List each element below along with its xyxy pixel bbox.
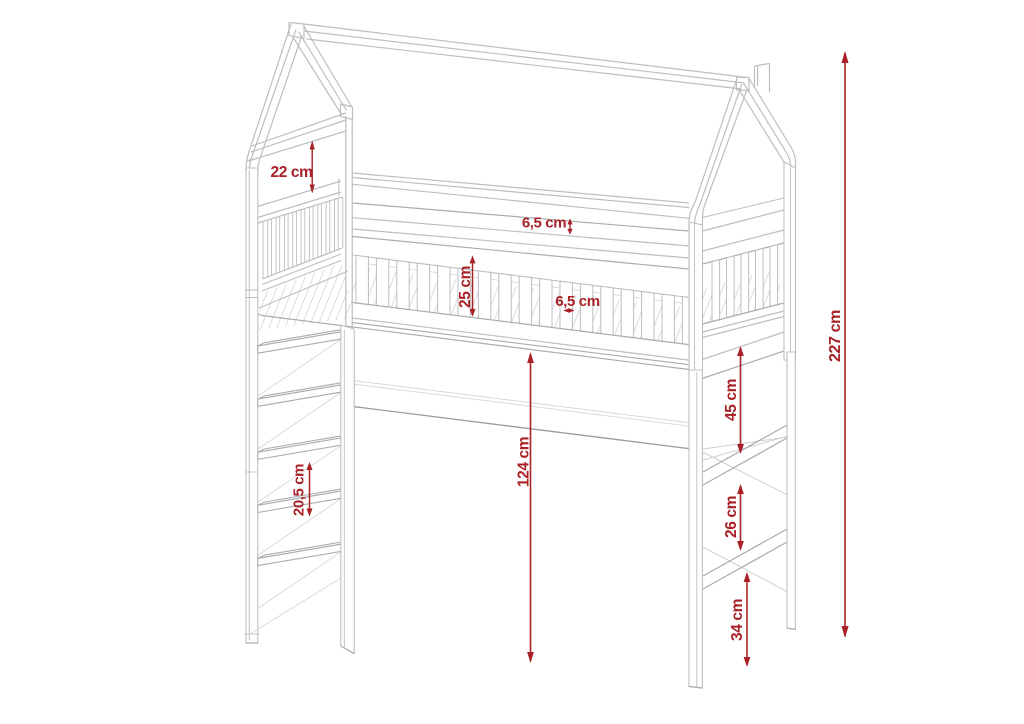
svg-text:26 cm: 26 cm [723, 496, 740, 538]
svg-text:20,5 cm: 20,5 cm [291, 464, 308, 516]
svg-text:227 cm: 227 cm [827, 310, 844, 362]
svg-text:34 cm: 34 cm [729, 599, 746, 641]
svg-text:25 cm: 25 cm [457, 266, 474, 308]
svg-text:45 cm: 45 cm [723, 379, 740, 421]
svg-text:6,5 cm: 6,5 cm [522, 215, 566, 232]
svg-text:6,5 cm: 6,5 cm [555, 293, 599, 310]
svg-text:22 cm: 22 cm [271, 164, 313, 181]
